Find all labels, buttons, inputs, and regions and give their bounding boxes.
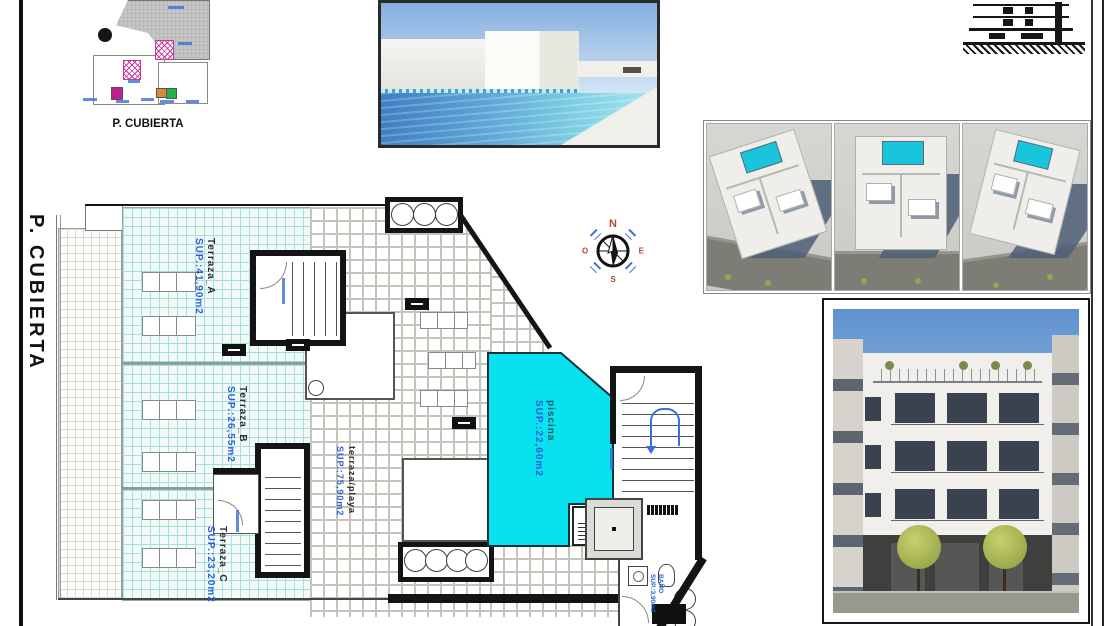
label-terraza-c: Terraza_C SUP.:23,20m2 xyxy=(204,526,228,626)
drawing-sheet: P. CUBIERTA P. CUBIERTA xyxy=(0,0,1110,626)
area-sup: SUP.:3,90m2 xyxy=(648,574,656,624)
wall-wing-left xyxy=(610,366,616,444)
floor-plan: Terraza_A SUP.:41,90m2 Terraza_B SUP.:26… xyxy=(0,0,1110,626)
area-name: Terraza_A xyxy=(204,238,216,368)
stair-direction-arrow xyxy=(650,408,680,446)
sun-lounger xyxy=(428,352,476,369)
area-name: Terraza_B xyxy=(236,386,248,506)
area-sup: SUP.:22,60m2 xyxy=(532,400,544,510)
compass-needle-icon xyxy=(595,233,631,269)
sun-lounger xyxy=(142,316,196,336)
bathroom-sink xyxy=(628,566,648,586)
label-terraza-b: Terraza_B SUP.:26,55m2 xyxy=(224,386,248,506)
sun-lounger xyxy=(142,500,196,520)
micro-label xyxy=(236,510,239,532)
sun-lounger xyxy=(420,390,468,407)
area-name: BAÑO xyxy=(656,574,664,624)
sun-lounger xyxy=(142,400,196,420)
label-terraza-a: Terraza_A SUP.:41,90m2 xyxy=(192,238,216,368)
ac-unit xyxy=(405,298,429,310)
tank-circle xyxy=(435,203,458,226)
area-name: Terraza_C xyxy=(216,526,228,626)
label-terraza-playa: terraza/playa SUP.:75,90m2 xyxy=(334,446,358,576)
compass-s: S xyxy=(610,275,615,284)
plan-left-line xyxy=(60,215,61,600)
sun-lounger xyxy=(142,452,196,472)
area-sup: SUP.:41,90m2 xyxy=(192,238,204,368)
sink-bowl xyxy=(633,571,644,582)
wall-wing-top xyxy=(610,366,702,373)
area-sup: SUP.:23,20m2 xyxy=(204,526,216,626)
label-bano: BAÑO SUP.:3,90m2 xyxy=(648,574,664,624)
plan-left-line xyxy=(56,215,57,600)
ac-unit xyxy=(286,339,310,351)
neighbor-terrace-strip xyxy=(58,228,122,600)
sun-lounger xyxy=(420,312,468,329)
compass-n: N xyxy=(609,218,617,230)
tank-circle xyxy=(413,203,436,226)
tank-circle xyxy=(465,549,488,572)
plan-top-step xyxy=(85,205,123,231)
elevator-dot xyxy=(612,527,616,531)
ac-unit xyxy=(452,417,476,429)
vent-grill xyxy=(646,505,678,515)
area-sup: SUP.:26,55m2 xyxy=(224,386,236,506)
tank-circle xyxy=(391,203,414,226)
tank-circle xyxy=(425,549,448,572)
compass-o: O xyxy=(582,247,588,256)
sun-lounger xyxy=(142,548,196,568)
wall-wing-right xyxy=(695,366,702,562)
stair-a-treads xyxy=(292,262,338,336)
sun-lounger xyxy=(142,272,196,292)
wall-bottom-thick xyxy=(388,594,648,603)
compass-e: E xyxy=(639,247,644,256)
stair-b-treads xyxy=(265,470,301,566)
arrow-tip xyxy=(646,446,656,454)
area-sup: SUP.:75,90m2 xyxy=(334,446,346,576)
machine-room-drum xyxy=(308,380,324,396)
micro-label xyxy=(282,278,285,304)
ac-unit xyxy=(222,344,246,356)
elevator-shaft xyxy=(585,498,643,560)
terrace-divider xyxy=(122,362,310,364)
area-name: terraza/playa xyxy=(346,446,358,576)
solarium-room xyxy=(402,458,490,542)
area-name: piscina xyxy=(544,400,556,510)
micro-label xyxy=(610,448,613,470)
compass-rose: N S E O xyxy=(584,222,642,280)
label-piscina: piscina SUP.:22,60m2 xyxy=(532,400,556,510)
tank-circle xyxy=(404,549,427,572)
